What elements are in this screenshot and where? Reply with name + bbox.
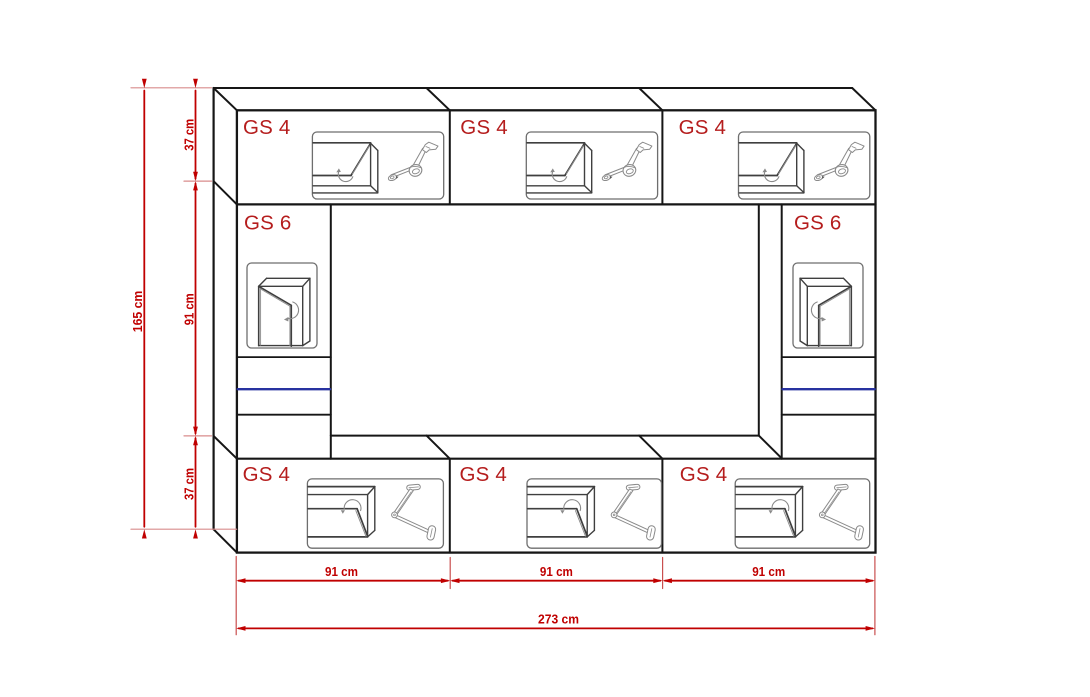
svg-text:GS 6: GS 6 <box>794 212 842 235</box>
svg-text:37 cm: 37 cm <box>183 119 197 151</box>
svg-text:37 cm: 37 cm <box>183 468 197 500</box>
svg-text:273 cm: 273 cm <box>538 613 579 627</box>
svg-text:GS 4: GS 4 <box>460 116 508 139</box>
svg-text:GS 4: GS 4 <box>460 463 508 486</box>
svg-text:GS 4: GS 4 <box>243 463 291 486</box>
svg-text:165 cm: 165 cm <box>131 291 145 333</box>
svg-text:91 cm: 91 cm <box>752 565 785 579</box>
svg-text:91 cm: 91 cm <box>540 565 573 579</box>
svg-text:GS 4: GS 4 <box>243 116 291 139</box>
svg-text:91 cm: 91 cm <box>325 565 358 579</box>
svg-text:GS 6: GS 6 <box>244 212 292 235</box>
svg-text:GS 4: GS 4 <box>680 463 728 486</box>
svg-text:91 cm: 91 cm <box>183 293 197 325</box>
svg-text:GS 4: GS 4 <box>679 116 727 139</box>
